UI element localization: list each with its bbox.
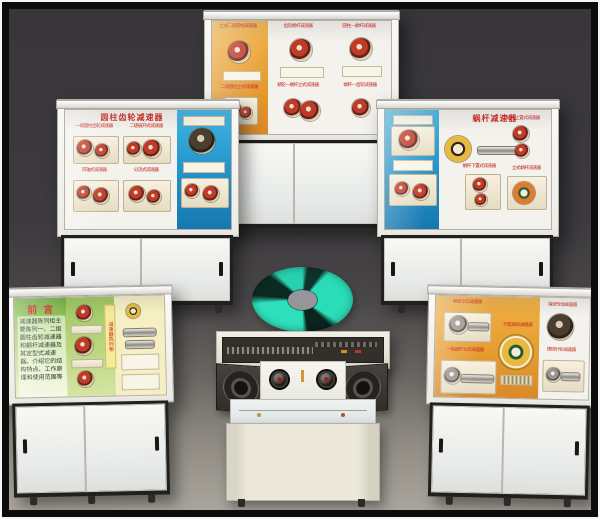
deck-marker xyxy=(257,413,261,417)
cabinet-foot xyxy=(398,305,405,313)
gear-model xyxy=(395,182,409,196)
door-handle xyxy=(439,439,443,453)
gear-model xyxy=(147,190,161,204)
cabinet-lower-left-doors xyxy=(12,400,170,497)
label-card xyxy=(183,116,225,126)
cabinet-foot xyxy=(446,497,453,505)
gear-model xyxy=(127,142,141,156)
gear-model xyxy=(300,101,320,121)
model-plate xyxy=(71,359,103,369)
gear-model xyxy=(513,126,529,142)
cabinet-top-trim xyxy=(376,100,560,109)
cabinet-foot xyxy=(297,228,304,236)
amplifier-switch-row xyxy=(315,342,377,347)
gear-model xyxy=(143,140,161,158)
cabinet-door-right xyxy=(293,143,390,224)
model-label: 分流式减速器 xyxy=(125,168,167,173)
label-card xyxy=(342,66,382,77)
model-label: 齿轮蜗杆减速器 xyxy=(276,24,320,29)
model-label: 圆柱—蜗杆减速器 xyxy=(336,24,382,29)
model-label: 单级立式减速器 xyxy=(446,300,488,305)
console-foot xyxy=(358,499,365,507)
gear-model xyxy=(350,38,372,60)
cabinet-foot xyxy=(30,497,37,505)
cabinet-upper-left-glass: 圆柱齿轮减速器 一级圆柱齿轮减速器 二级展开式减速器 同轴式减速器 分流式减速器 xyxy=(64,109,232,230)
gold-emblem xyxy=(301,370,304,382)
cabinet-lower-right-case: 单级立式减速器 一级蜗杆立式减速器 行星齿轮减速器 谐波传动减速器 摆线针轮减速… xyxy=(426,284,598,408)
cabinet-door-right xyxy=(83,403,167,492)
cabinet-foot xyxy=(504,498,511,506)
gear-model xyxy=(129,186,145,202)
gear-model xyxy=(515,144,529,158)
model-label: 蜗轮—蜗杆立式减速器 xyxy=(274,83,322,88)
cabinet-upper-right-case: 蜗杆减速器 蜗杆上置式减速器 蜗杆下置式减速器 立式蜗杆减速器 xyxy=(377,99,559,237)
door-handle xyxy=(575,442,579,456)
cabinet-top-trim xyxy=(56,100,240,109)
cabinet-lower-right: 单级立式减速器 一级蜗杆立式减速器 行星齿轮减速器 谐波传动减速器 摆线针轮减速… xyxy=(424,284,597,509)
cabinet-foot xyxy=(368,228,375,236)
cabinet-upper-left-case: 圆柱齿轮减速器 一级圆柱齿轮减速器 二级展开式减速器 同轴式减速器 分流式减速器 xyxy=(57,99,239,237)
gear-model xyxy=(77,140,93,156)
housing-model xyxy=(122,374,160,391)
label-card xyxy=(223,71,261,81)
model-label: 蜗杆—齿轮减速器 xyxy=(338,83,382,88)
cabinet-lower-left-case: 前言 减速器陈列柜主要陈列一、二级圆柱齿轮减速器和蜗杆减速器及其定型式减速器。介… xyxy=(6,284,174,405)
gear-model xyxy=(413,184,429,200)
foreword-body-text: 减速器陈列柜主要陈列一、二级圆柱齿轮减速器和蜗杆减速器及其定型式减速器。介绍它的… xyxy=(17,315,67,398)
shaft-model xyxy=(467,322,489,331)
cabinet-foot xyxy=(564,499,571,507)
gear-model xyxy=(547,314,574,341)
gear-rack-model xyxy=(500,375,532,386)
gear-model xyxy=(240,107,252,119)
cabinet-lower-left: 前言 减速器陈列柜主要陈列一、二级圆柱齿轮减速器和蜗杆减速器及其定型式减速器。介… xyxy=(6,284,175,509)
indicator-light-orange xyxy=(341,350,347,353)
shaft-model xyxy=(560,372,580,381)
amplifier-panel xyxy=(222,337,384,363)
cabinet-foot xyxy=(148,495,155,503)
model-label: 蜗杆下置式减速器 xyxy=(459,164,499,169)
cabinet-foot xyxy=(215,305,222,313)
shaft-model xyxy=(123,328,157,338)
model-label: 同轴式减速器 xyxy=(73,168,115,173)
gear-model xyxy=(93,188,109,204)
housing-model xyxy=(121,354,159,371)
door-handle xyxy=(391,262,395,276)
cabinet-upper-right-glass: 蜗杆减速器 蜗杆上置式减速器 蜗杆下置式减速器 立式蜗杆减速器 xyxy=(384,109,552,230)
door-handle xyxy=(23,440,27,454)
model-label: 摆线针轮减速器 xyxy=(541,348,582,353)
gear-model xyxy=(95,144,109,158)
label-card xyxy=(393,160,433,171)
gear-model xyxy=(228,41,250,63)
cabinet-door-right xyxy=(501,407,587,496)
shaft-model xyxy=(460,374,494,384)
console-body xyxy=(226,423,380,501)
gear-model xyxy=(399,130,419,150)
indicator-light-red xyxy=(355,350,361,353)
foreword-title: 前言 xyxy=(18,301,62,317)
cabinet-foot xyxy=(88,496,95,504)
deck-marker xyxy=(341,413,345,417)
tape-deck-lid xyxy=(230,399,376,425)
door-handle xyxy=(539,262,543,276)
model-label: 立式二级圆柱减速器 xyxy=(216,24,260,29)
deck-seam xyxy=(239,410,367,411)
model-plate xyxy=(70,325,102,335)
gear-model xyxy=(189,128,215,154)
door-handle xyxy=(71,262,75,276)
reel-knob-right xyxy=(318,371,335,388)
audio-console xyxy=(216,331,388,505)
gear-model xyxy=(203,186,219,202)
door-handle xyxy=(155,437,159,451)
cabinet-top-trim xyxy=(203,11,400,20)
model-label: 谐波传动减速器 xyxy=(544,303,581,308)
gear-model xyxy=(475,194,487,206)
label-card xyxy=(393,115,433,125)
model-label: 蜗杆上置式减速器 xyxy=(503,116,543,121)
gear-model xyxy=(513,182,535,204)
gear-model xyxy=(473,178,487,192)
cabinet-lower-right-doors xyxy=(428,402,590,499)
vertical-label-strip: 减速器陈列柜 xyxy=(104,304,116,368)
gear-model xyxy=(290,39,312,61)
photo-scene: 立式二级圆柱减速器 二级圆柱立式减速器 齿轮蜗杆减速器 蜗轮—蜗杆立式减速器 圆… xyxy=(0,0,600,519)
console-foot xyxy=(238,499,245,507)
shaft-model xyxy=(125,340,155,350)
label-card xyxy=(280,67,324,78)
reel-knob-left xyxy=(271,371,288,388)
model-label: 立式蜗杆减速器 xyxy=(507,166,546,171)
model-label: 行星齿轮减速器 xyxy=(497,323,538,328)
model-label: 一级圆柱齿轮减速器 xyxy=(73,124,115,129)
amplifier-buttons xyxy=(227,347,313,354)
gear-model xyxy=(77,186,91,200)
cabinet-lower-right-glass: 单级立式减速器 一级蜗杆立式减速器 行星齿轮减速器 谐波传动减速器 摆线针轮减速… xyxy=(433,294,591,400)
door-handle xyxy=(219,262,223,276)
gear-model xyxy=(445,136,471,162)
gear-model xyxy=(185,184,199,198)
model-label: 二级圆柱立式减速器 xyxy=(217,85,261,90)
cd-disc xyxy=(252,267,353,332)
cabinet-lower-left-glass: 前言 减速器陈列柜主要陈列一、二级圆柱齿轮减速器和蜗杆减速器及其定型式减速器。介… xyxy=(13,294,167,398)
cabinet-title: 圆柱齿轮减速器 xyxy=(87,112,177,123)
model-label: 一级蜗杆立式减速器 xyxy=(441,348,489,354)
model-label: 二级展开式减速器 xyxy=(125,124,167,129)
cd-hole xyxy=(288,290,317,310)
label-card xyxy=(183,162,225,173)
gear-model xyxy=(352,99,370,117)
